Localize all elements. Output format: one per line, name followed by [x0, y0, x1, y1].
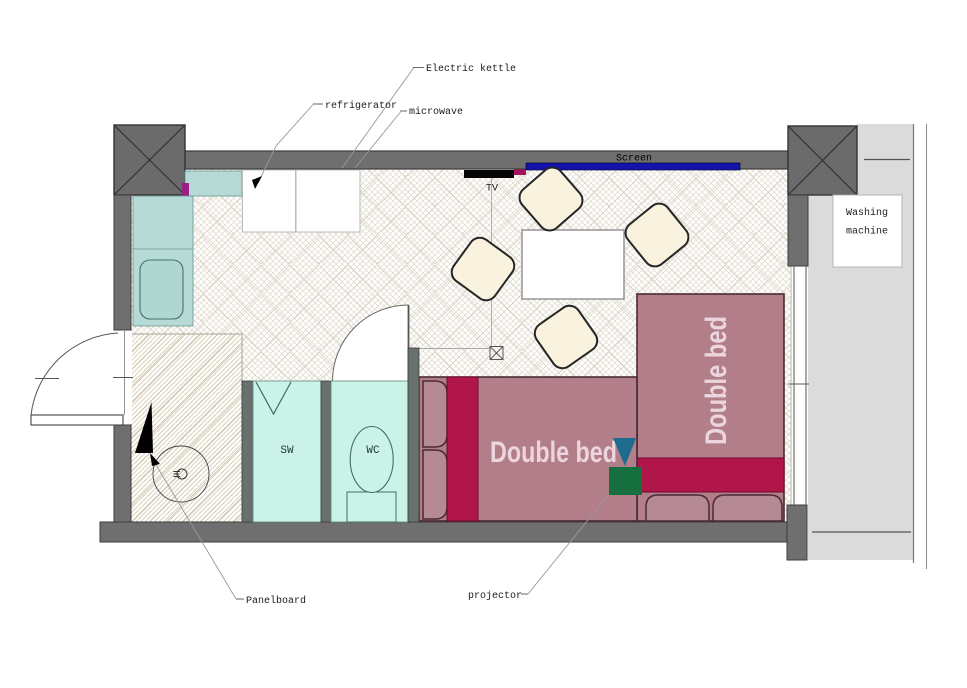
svg-text:refrigerator: refrigerator — [325, 100, 397, 112]
svg-text:Panelboard: Panelboard — [246, 595, 306, 607]
svg-text:Double bed: Double bed — [700, 316, 733, 445]
svg-text:Washing: Washing — [846, 207, 888, 219]
svg-text:Double bed: Double bed — [490, 436, 617, 469]
svg-text:microwave: microwave — [409, 106, 463, 118]
svg-text:WC: WC — [366, 445, 380, 457]
svg-text:TV: TV — [486, 184, 498, 195]
svg-text:projector: projector — [468, 590, 522, 602]
svg-text:machine: machine — [846, 226, 888, 238]
svg-text:Electric kettle: Electric kettle — [426, 63, 516, 75]
svg-text:SW: SW — [280, 445, 294, 457]
svg-text:Screen: Screen — [616, 154, 652, 165]
